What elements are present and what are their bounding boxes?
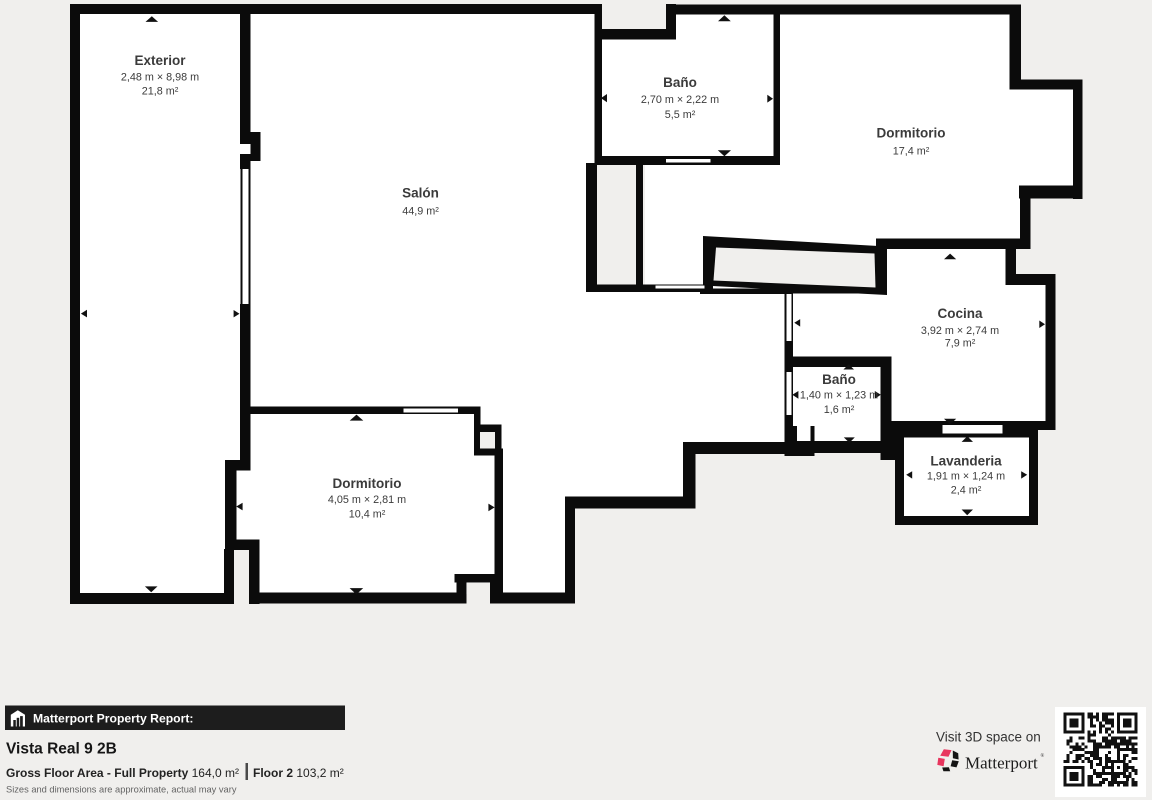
svg-text:Gross Floor Area - Full Proper: Gross Floor Area - Full Property 164,0 m… <box>6 766 239 780</box>
svg-text:Floor 2 103,2 m²: Floor 2 103,2 m² <box>253 766 344 780</box>
svg-text:2,4 m²: 2,4 m² <box>951 485 982 497</box>
svg-text:Visit 3D space on: Visit 3D space on <box>936 730 1041 745</box>
svg-text:Exterior: Exterior <box>134 53 186 68</box>
svg-text:Dormitorio: Dormitorio <box>877 126 946 141</box>
svg-text:7,9 m²: 7,9 m² <box>945 338 976 350</box>
svg-text:17,4 m²: 17,4 m² <box>893 146 930 158</box>
svg-text:4,05 m × 2,81 m: 4,05 m × 2,81 m <box>328 494 406 506</box>
svg-text:3,92 m × 2,74 m: 3,92 m × 2,74 m <box>921 325 999 337</box>
svg-text:1,91 m × 1,24 m: 1,91 m × 1,24 m <box>927 471 1005 483</box>
svg-text:1,40 m × 1,23 m: 1,40 m × 1,23 m <box>800 390 878 402</box>
svg-text:2,70 m × 2,22 m: 2,70 m × 2,22 m <box>641 94 719 106</box>
svg-text:21,8 m²: 21,8 m² <box>142 86 179 98</box>
svg-text:1,6 m²: 1,6 m² <box>824 404 855 416</box>
svg-text:Vista Real 9 2B: Vista Real 9 2B <box>6 741 117 758</box>
svg-text:Dormitorio: Dormitorio <box>333 476 402 491</box>
svg-text:44,9 m²: 44,9 m² <box>402 206 439 218</box>
svg-text:5,5 m²: 5,5 m² <box>665 109 696 121</box>
svg-text:Matterport: Matterport <box>965 754 1038 773</box>
svg-text:10,4 m²: 10,4 m² <box>349 509 386 521</box>
svg-text:Salón: Salón <box>402 186 439 201</box>
svg-text:®: ® <box>1041 753 1045 759</box>
svg-text:Baño: Baño <box>822 372 856 387</box>
svg-text:Matterport Property Report:: Matterport Property Report: <box>33 712 193 726</box>
svg-text:Baño: Baño <box>663 75 697 90</box>
svg-text:Cocina: Cocina <box>937 306 983 321</box>
svg-text:Sizes and dimensions are appro: Sizes and dimensions are approximate, ac… <box>6 785 237 795</box>
svg-text:2,48 m × 8,98 m: 2,48 m × 8,98 m <box>121 72 199 84</box>
svg-text:Lavanderia: Lavanderia <box>930 454 1002 469</box>
